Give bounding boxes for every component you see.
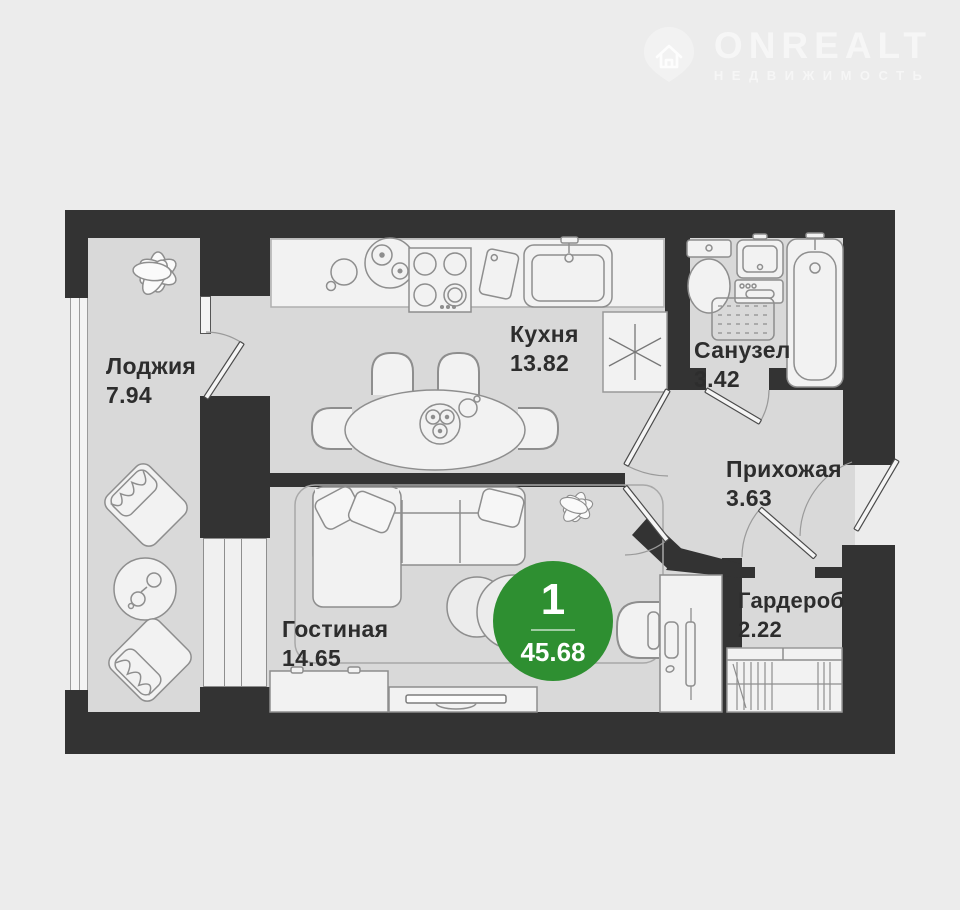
room-name: Кухня <box>510 320 579 349</box>
room-label-loggia: Лоджия 7.94 <box>106 352 196 410</box>
clothes-rail <box>727 648 842 712</box>
toilet-icon <box>687 240 731 313</box>
floorplan-canvas: ONREALT НЕДВИЖИМОСТЬ <box>0 0 960 910</box>
room-label-living: Гостиная 14.65 <box>282 615 388 673</box>
desk <box>660 575 722 712</box>
room-label-bathroom: Санузел 3.42 <box>694 336 791 394</box>
loggia-table-icon <box>114 558 176 620</box>
armchair-icon <box>101 460 192 551</box>
room-area: 2.22 <box>738 615 844 644</box>
area-badge: 1 45.68 <box>493 561 613 681</box>
kitchen-counter <box>271 237 664 312</box>
wall-hall-desk <box>666 548 742 578</box>
bathtub-icon <box>787 233 843 387</box>
room-label-wardrobe: Гардероб 2.22 <box>738 586 844 644</box>
armchair-icon <box>105 615 196 706</box>
plant-icon <box>558 491 594 525</box>
plate-icon <box>420 404 460 444</box>
room-area: 13.82 <box>510 349 579 378</box>
total-area: 45.68 <box>520 639 585 665</box>
room-area: 3.42 <box>694 365 791 394</box>
dresser <box>270 667 388 712</box>
monitor-icon <box>686 622 695 686</box>
room-area: 7.94 <box>106 381 196 410</box>
office-chair-icon <box>617 602 659 658</box>
rooms-count: 1 <box>541 578 565 622</box>
washing-machine-icon <box>735 280 783 303</box>
room-area: 14.65 <box>282 644 388 673</box>
room-name: Санузел <box>694 336 791 365</box>
living-furniture <box>270 484 722 712</box>
washbasin-icon <box>737 234 783 278</box>
room-label-hallway: Прихожая 3.63 <box>726 455 842 513</box>
loggia-furniture <box>101 252 196 705</box>
fridge-icon <box>603 312 667 392</box>
kitchen-sink-icon <box>524 237 612 307</box>
tv-stand <box>389 687 537 712</box>
plant-icon <box>132 252 180 298</box>
room-name: Прихожая <box>726 455 842 484</box>
room-label-kitchen: Кухня 13.82 <box>510 320 579 378</box>
room-name: Лоджия <box>106 352 196 381</box>
tv-icon <box>406 695 506 703</box>
stove-icon <box>409 248 471 312</box>
room-area: 3.63 <box>726 484 842 513</box>
room-name: Гардероб <box>738 586 844 615</box>
badge-divider <box>531 629 575 631</box>
room-name: Гостиная <box>282 615 388 644</box>
